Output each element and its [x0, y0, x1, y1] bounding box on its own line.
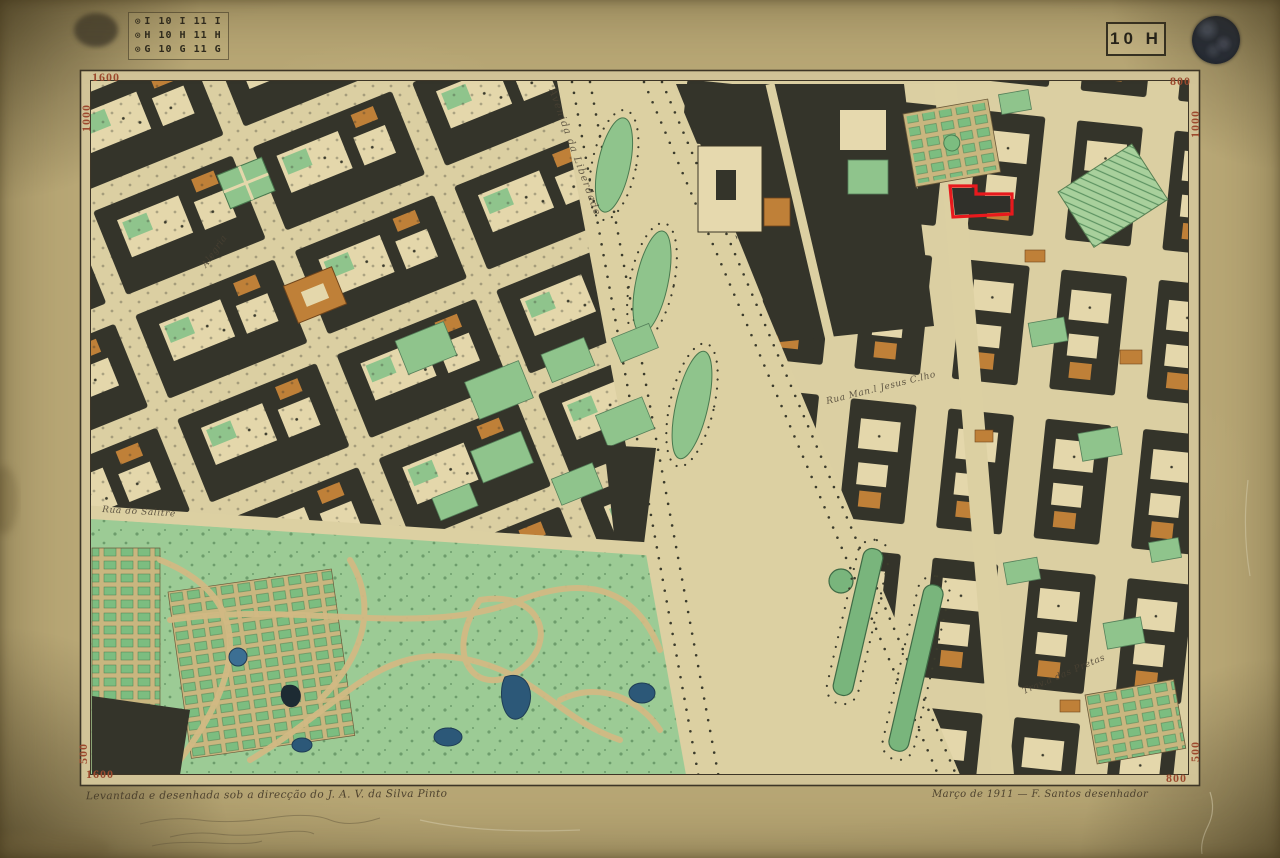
formal-garden-se [1085, 679, 1186, 764]
credit-caption: Levantada e desenhada sob a direcção do … [86, 788, 447, 803]
sheet-number-box: 10 H [1106, 22, 1166, 56]
coord-top-left-v: 1000 [79, 104, 94, 132]
garden-fountain [229, 648, 247, 666]
garden-pond [501, 675, 530, 719]
registration-mark-icon: ⊙ [135, 45, 141, 55]
ink-seal-icon [1192, 16, 1240, 64]
ink-smudge [74, 13, 118, 47]
map-canvas[interactable]: Avenida da Liberdade Rua do Salitre Rua … [0, 0, 1280, 858]
coord-bottom-left-h: 1600 [86, 767, 114, 782]
coord-top-right-h: 800 [1170, 74, 1191, 89]
coord-bottom-right-h: 800 [1166, 771, 1187, 786]
date-caption: Março de 1911 — F. Santos desenhador [932, 789, 1148, 800]
coord-top-right-v: 1000 [1188, 110, 1203, 138]
coord-top-left-h: 1600 [92, 70, 120, 85]
sheet-number-label: 10 H [1110, 29, 1162, 49]
registration-mark-icon: ⊙ [135, 31, 141, 41]
registration-mark-icon: ⊙ [135, 17, 141, 27]
sheet-index-stamp: ⊙I 10 I 11 I ⊙H 10 H 11 H ⊙G 10 G 11 G [128, 12, 229, 60]
map-content: Avenida da Liberdade Rua do Salitre Rua … [88, 80, 1189, 784]
formal-garden-ne [903, 99, 1001, 187]
coord-bottom-left-v: 500 [76, 743, 91, 764]
coord-bottom-right-v: 500 [1188, 741, 1203, 762]
scanned-map-sheet: Avenida da Liberdade Rua do Salitre Rua … [0, 0, 1280, 858]
pencil-note [140, 815, 380, 846]
stamp-row: ⊙H 10 H 11 H [135, 29, 222, 43]
stamp-row: ⊙G 10 G 11 G [135, 43, 222, 57]
stamp-row: ⊙I 10 I 11 I [135, 15, 222, 29]
